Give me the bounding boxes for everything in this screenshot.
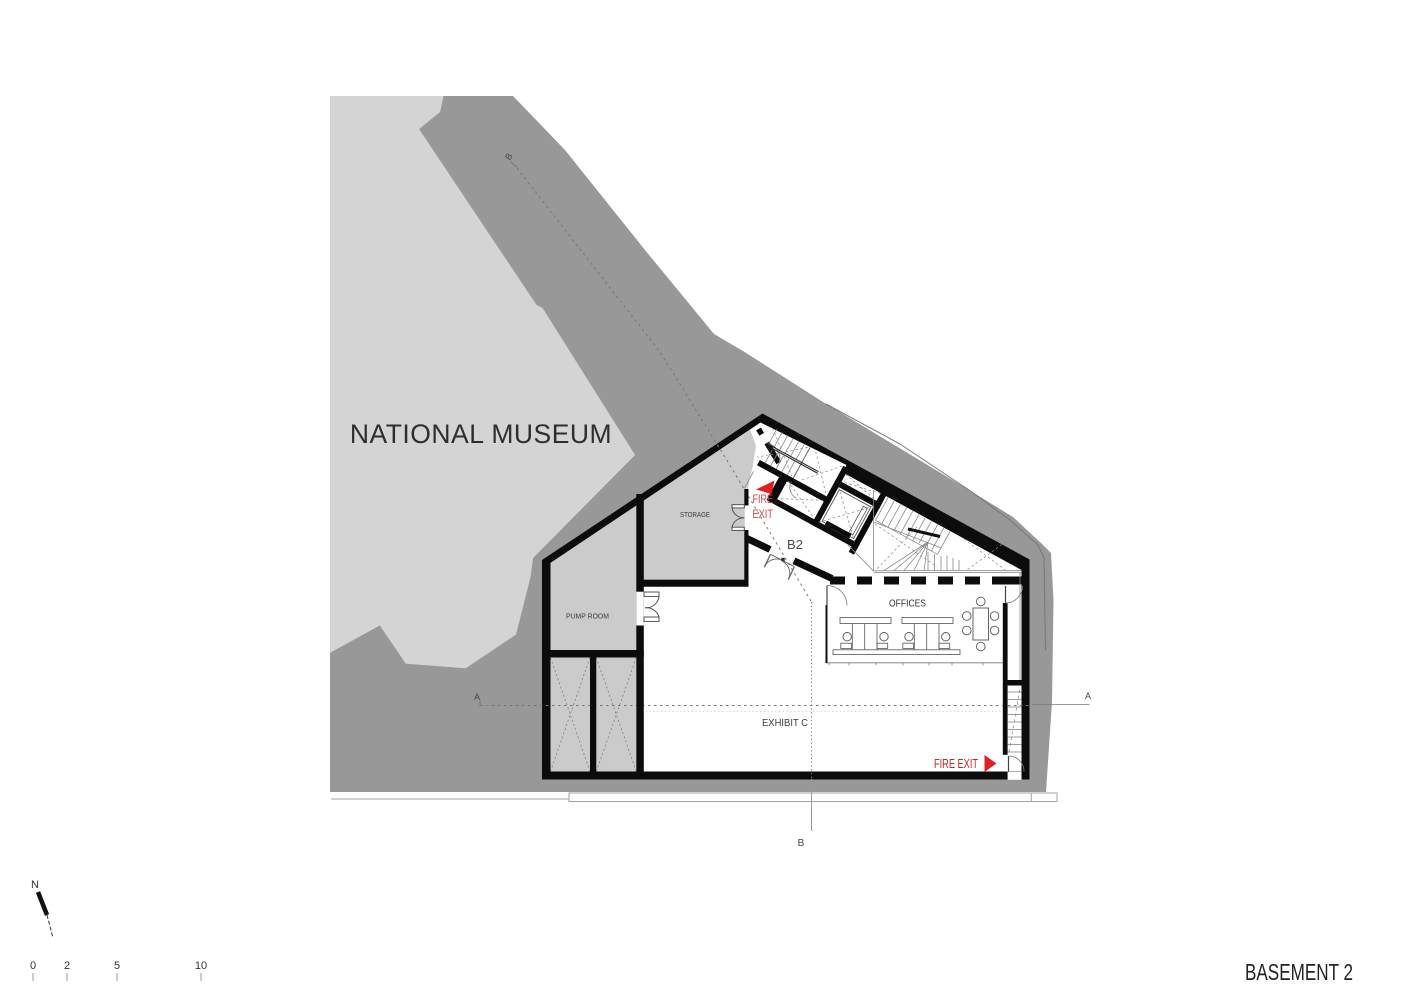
svg-text:OFFICES: OFFICES — [889, 598, 926, 610]
svg-text:0: 0 — [30, 960, 36, 972]
svg-text:5: 5 — [114, 960, 120, 972]
svg-text:A: A — [1085, 691, 1091, 701]
svg-text:FIRE EXIT: FIRE EXIT — [934, 757, 978, 771]
svg-text:N: N — [31, 879, 39, 891]
svg-text:B: B — [798, 838, 805, 849]
svg-text:A: A — [474, 692, 480, 702]
svg-text:10: 10 — [195, 960, 207, 972]
svg-text:EXIT: EXIT — [753, 507, 774, 521]
svg-text:FIRE: FIRE — [753, 492, 774, 506]
svg-text:NATIONAL MUSEUM: NATIONAL MUSEUM — [350, 419, 612, 449]
svg-text:2: 2 — [64, 960, 70, 972]
svg-text:PUMP ROOM: PUMP ROOM — [566, 612, 609, 621]
svg-text:BASEMENT 2: BASEMENT 2 — [1245, 959, 1353, 985]
svg-text:EXHIBIT C: EXHIBIT C — [762, 718, 808, 729]
svg-text:B2: B2 — [787, 537, 803, 552]
svg-text:STORAGE: STORAGE — [680, 510, 710, 519]
